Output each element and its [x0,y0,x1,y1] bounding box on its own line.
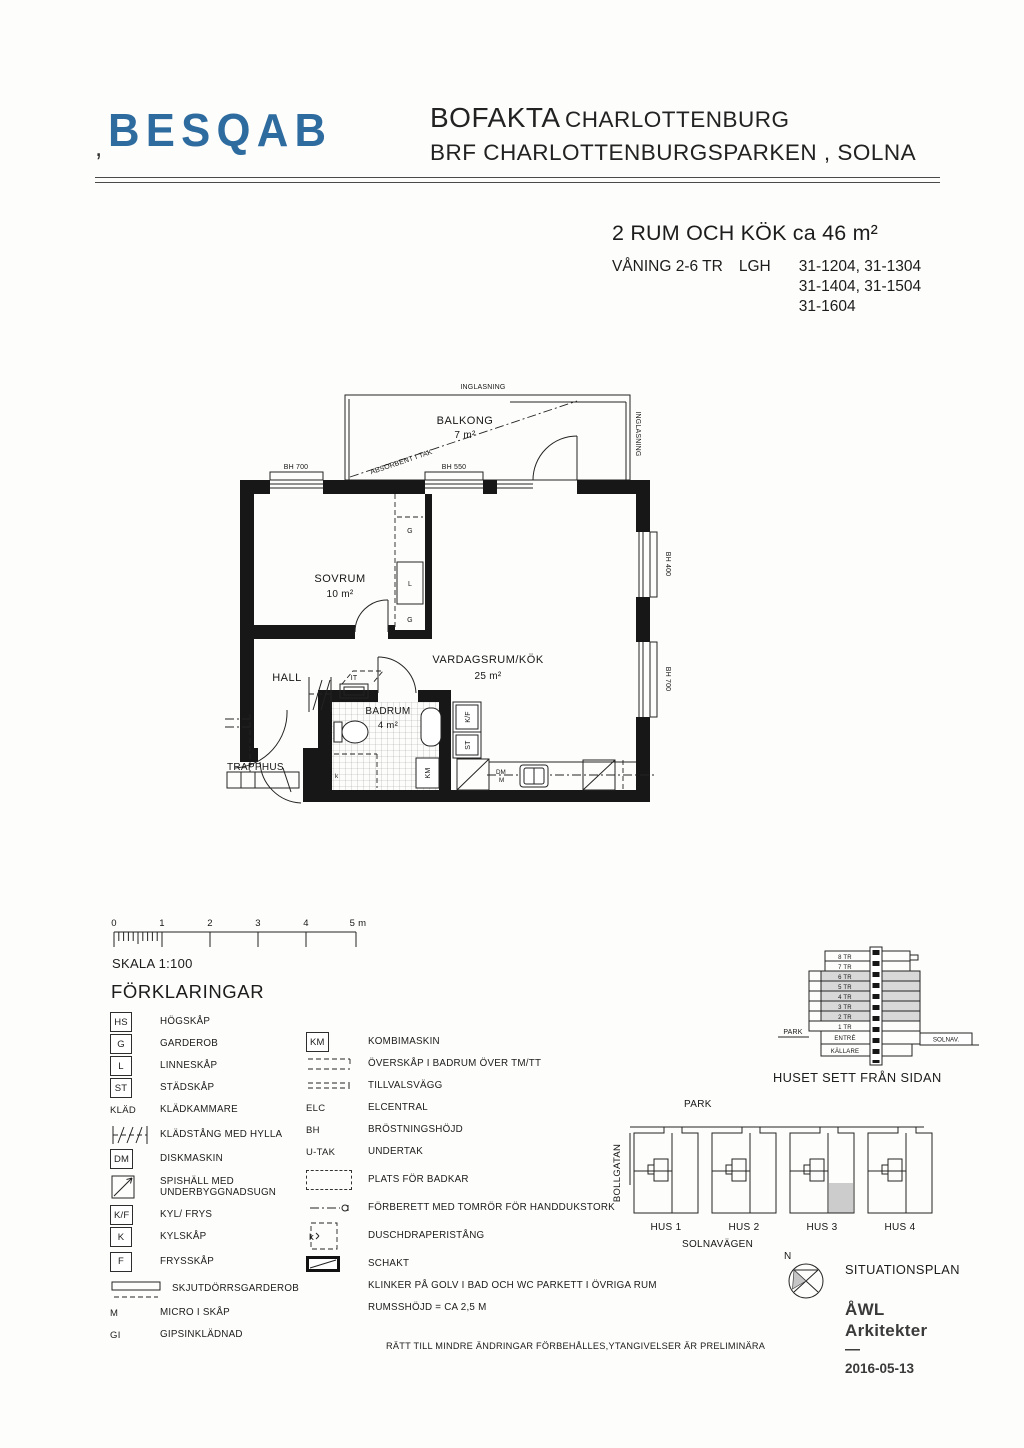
symbol-st: ST [110,1078,132,1098]
symbol-elc: ELC [306,1103,325,1114]
absorbent-note: ABSORBENT I TAK [370,449,434,476]
site-plan: PARK BOLLGATAN HUS 1 HUS 2 HUS 3 HUS 4 [612,1093,942,1251]
closet-g1: G [407,528,413,535]
living-label: VARDAGSRUM/KÖK [432,654,543,666]
legend-row: HSHÖGSKÅP [110,1011,380,1033]
svg-text:1 TR: 1 TR [838,1025,852,1031]
bedroom-area: 10 m² [326,589,353,600]
glazing-label-side: INGLASNING [634,411,641,456]
towel-rail-pipe-icon [306,1201,354,1215]
bath-area: 4 m² [378,720,398,731]
symbol-hs: HS [110,1012,132,1032]
north-label: N [784,1251,792,1262]
symbol-l: L [110,1056,132,1076]
svg-text:HUS 1: HUS 1 [651,1222,682,1233]
symbol-g: G [110,1034,132,1054]
svg-text:KÄLLARE: KÄLLARE [831,1048,859,1055]
floor-plan: INGLASNING INGLASNING BALKONG 7 m² ABSOR… [225,372,695,812]
symbol-gi: GI [110,1330,121,1341]
symbol-dm: DM [110,1149,133,1169]
hall-label: HALL [272,672,302,684]
it-label: IT [351,675,358,682]
north-compass: N [776,1247,840,1307]
scale-tick-2: 2 [207,918,213,929]
legend-row: ÖVERSKÅP I BADRUM ÖVER TM/TT [306,1053,706,1075]
house-2 [712,1127,776,1213]
disclaimer-note: RÄTT TILL MINDRE ÄNDRINGAR FÖRBEHÅLLES,Y… [386,1341,765,1351]
floor-range: VÅNING 2-6 TR [612,257,723,317]
credits-dash: — [845,1341,927,1359]
minor-ticks [119,932,157,944]
symbol-k: K [110,1227,132,1247]
svg-text:3 TR: 3 TR [838,1005,852,1011]
legend-heading: FÖRKLARINGAR [111,981,264,1003]
window-bh700-right-label: BH 700 [664,667,671,692]
side-view-caption: HUSET SETT FRÅN SIDAN [773,1070,942,1085]
kf-label: K/F [465,711,472,723]
scale-tick-1: 1 [159,918,165,929]
highlighted-unit [829,1183,853,1213]
living-area: 25 m² [474,671,501,682]
wardrobes: G L G [395,494,423,630]
firm-name-2: Arkitekter [845,1320,927,1341]
scale-tick-3: 3 [255,918,261,929]
svg-text:7 TR: 7 TR [838,965,852,971]
bofakta-sheet: , BESQAB BOFAKTA CHARLOTTENBURG BRF CHAR… [0,0,1024,1448]
symbol-klad: KLÄD [110,1105,136,1116]
bedroom-label: SOVRUM [314,573,365,585]
km-label: KM [425,768,432,779]
svg-text:HUS 2: HUS 2 [729,1222,760,1233]
title-charlottenburg: CHARLOTTENBURG [565,107,790,132]
window-bh400-label: BH 400 [664,552,671,577]
window-bh700-top-label: BH 700 [284,464,309,471]
house-4 [868,1127,932,1213]
document-title: BOFAKTA CHARLOTTENBURG BRF CHARLOTTENBUR… [430,103,916,168]
kitchen: K/F ST DM M [453,702,655,790]
bathtub-space-icon [306,1170,352,1190]
solnavagen-label: SOLNAVÄGEN [682,1238,753,1250]
svg-text:ENTRÉ: ENTRÉ [834,1035,855,1042]
symbol-f: F [110,1252,132,1272]
svg-text:6 TR: 6 TR [838,975,852,981]
title-line-2: BRF CHARLOTTENBURGSPARKEN , SOLNA [430,138,916,168]
svg-text:2 TR: 2 TR [838,1015,852,1021]
shaft-icon [306,1256,340,1272]
firm-name-1: ÅWL [845,1299,927,1320]
balcony-label: BALKONG [437,415,494,427]
apartment-numbers-1: 31-1204, 31-1304 [799,257,921,277]
legend-row: KMKOMBIMASKIN [306,1031,706,1053]
overhead-cabinet-icon [306,1054,354,1074]
legend-row: KLINKER PÅ GOLV I BAD OCH WC PARKETT I Ö… [306,1275,706,1297]
title-line-1: BOFAKTA CHARLOTTENBURG [430,103,916,138]
m-label: M [499,777,504,784]
svg-text:5 TR: 5 TR [838,985,852,991]
site-plan-caption: SITUATIONSPLAN [845,1262,960,1277]
stairwell [225,710,301,803]
balcony-area: 7 m² [454,430,476,441]
house-1 [634,1127,698,1213]
svg-text:k: k [309,1232,314,1243]
symbol-utak: U-TAK [306,1147,335,1158]
besqab-logo: BESQAB [108,104,332,157]
sliding-wardrobe-icon [110,1278,162,1300]
svg-text:4 TR: 4 TR [838,995,852,1001]
building-side-view: 8 TR 7 TR 6 TR 5 TR 4 TR 3 TR 2 TR 1 TR … [775,945,980,1067]
shower-rail-icon: k [306,1220,340,1252]
scale-tick-5m: 5 m [350,918,367,929]
optional-wall-icon [306,1079,354,1093]
bedroom-door [355,600,388,632]
balcony: INGLASNING INGLASNING BALKONG 7 m² ABSOR… [345,384,641,488]
apartment-numbers-2: 31-1404, 31-1504 [799,277,921,297]
scale-label: SKALA 1:100 [112,956,193,971]
legend-row: RUMSSHÖJD = CA 2,5 M [306,1297,706,1319]
legend-row: SCHAKT [306,1253,706,1275]
dm-label: DM [496,769,506,776]
walls [240,480,650,802]
apartment-numbers-3: 31-1604 [799,297,921,317]
st-label: ST [465,740,472,750]
solnav-label: SOLNAV. [933,1037,960,1044]
apartment-headline: 2 RUM OCH KÖK ca 46 m² [612,221,952,246]
lgh-label: LGH [739,257,771,317]
park-label-side: PARK [783,1029,802,1036]
architect-credits: ÅWL Arkitekter — 2016-05-13 [845,1299,927,1376]
symbol-m: M [110,1308,118,1319]
svg-text:HUS 3: HUS 3 [807,1222,838,1233]
title-bofakta: BOFAKTA [430,102,561,133]
scale-tick-0: 0 [111,918,117,929]
stair-label: TRAPPHUS [227,762,284,773]
symbol-kf: K/F [110,1205,133,1225]
legend-row: GIGIPSINKLÄDNAD [110,1324,380,1346]
header-divider [95,177,940,183]
scale-tick-4: 4 [303,918,309,929]
glazing-label-top: INGLASNING [460,384,505,391]
apartment-numbers: 31-1204, 31-1304 31-1404, 31-1504 31-160… [799,257,921,317]
clothes-rail-icon [110,1123,150,1147]
hob-oven-icon [110,1174,136,1200]
drawing-date: 2016-05-13 [845,1361,927,1376]
svg-text:8 TR: 8 TR [838,955,852,961]
symbol-bh: BH [306,1125,320,1136]
bath-label: BADRUM [365,706,410,717]
svg-text:HUS 4: HUS 4 [885,1222,916,1233]
logo-scan-mark: , [95,132,102,163]
park-label-site: PARK [684,1099,712,1110]
apartment-facts: 2 RUM OCH KÖK ca 46 m² VÅNING 2-6 TR LGH… [612,221,952,317]
window-bh550-label: BH 550 [442,464,467,471]
symbol-km: KM [306,1032,329,1052]
apartment-units-row: VÅNING 2-6 TR LGH 31-1204, 31-1304 31-14… [612,257,952,317]
closet-g2: G [407,617,413,624]
bollgatan-label: BOLLGATAN [612,1144,623,1202]
scale-bar: 0 1 2 3 4 5 m [110,916,372,954]
closet-l: L [408,581,412,588]
